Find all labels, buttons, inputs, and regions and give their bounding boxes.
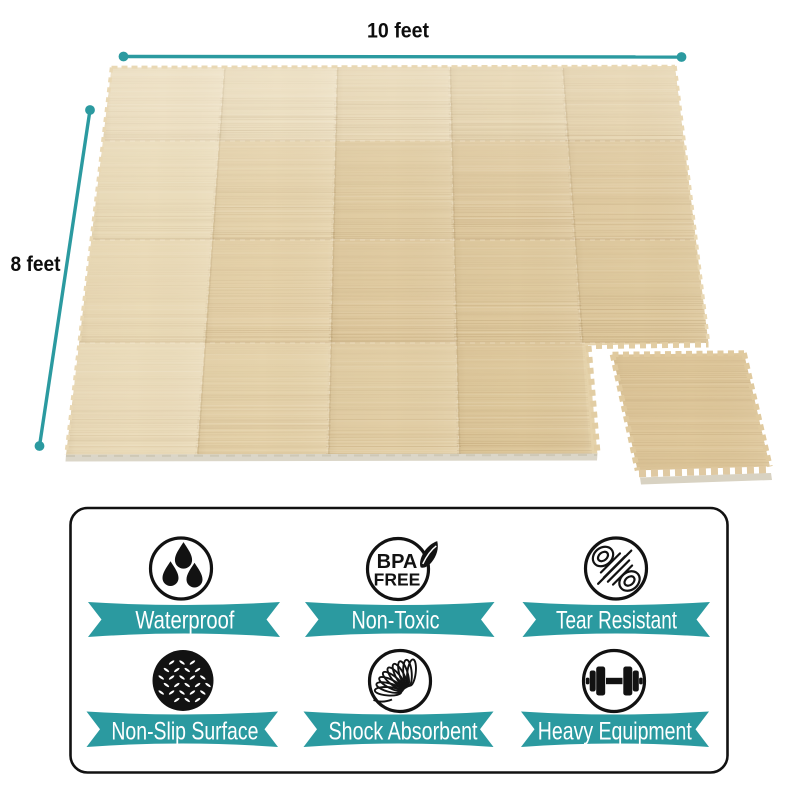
svg-text:Waterproof: Waterproof — [135, 607, 234, 635]
svg-text:Shock Absorbent: Shock Absorbent — [329, 718, 478, 746]
svg-text:Non-Slip Surface: Non-Slip Surface — [111, 718, 258, 746]
svg-text:10 feet: 10 feet — [367, 19, 429, 43]
svg-text:Tear Resistant: Tear Resistant — [556, 607, 677, 635]
svg-text:Non-Toxic: Non-Toxic — [352, 607, 440, 635]
svg-text:8 feet: 8 feet — [11, 252, 61, 276]
svg-text:Heavy Equipment: Heavy Equipment — [538, 718, 692, 746]
svg-text:FREE: FREE — [374, 570, 421, 590]
